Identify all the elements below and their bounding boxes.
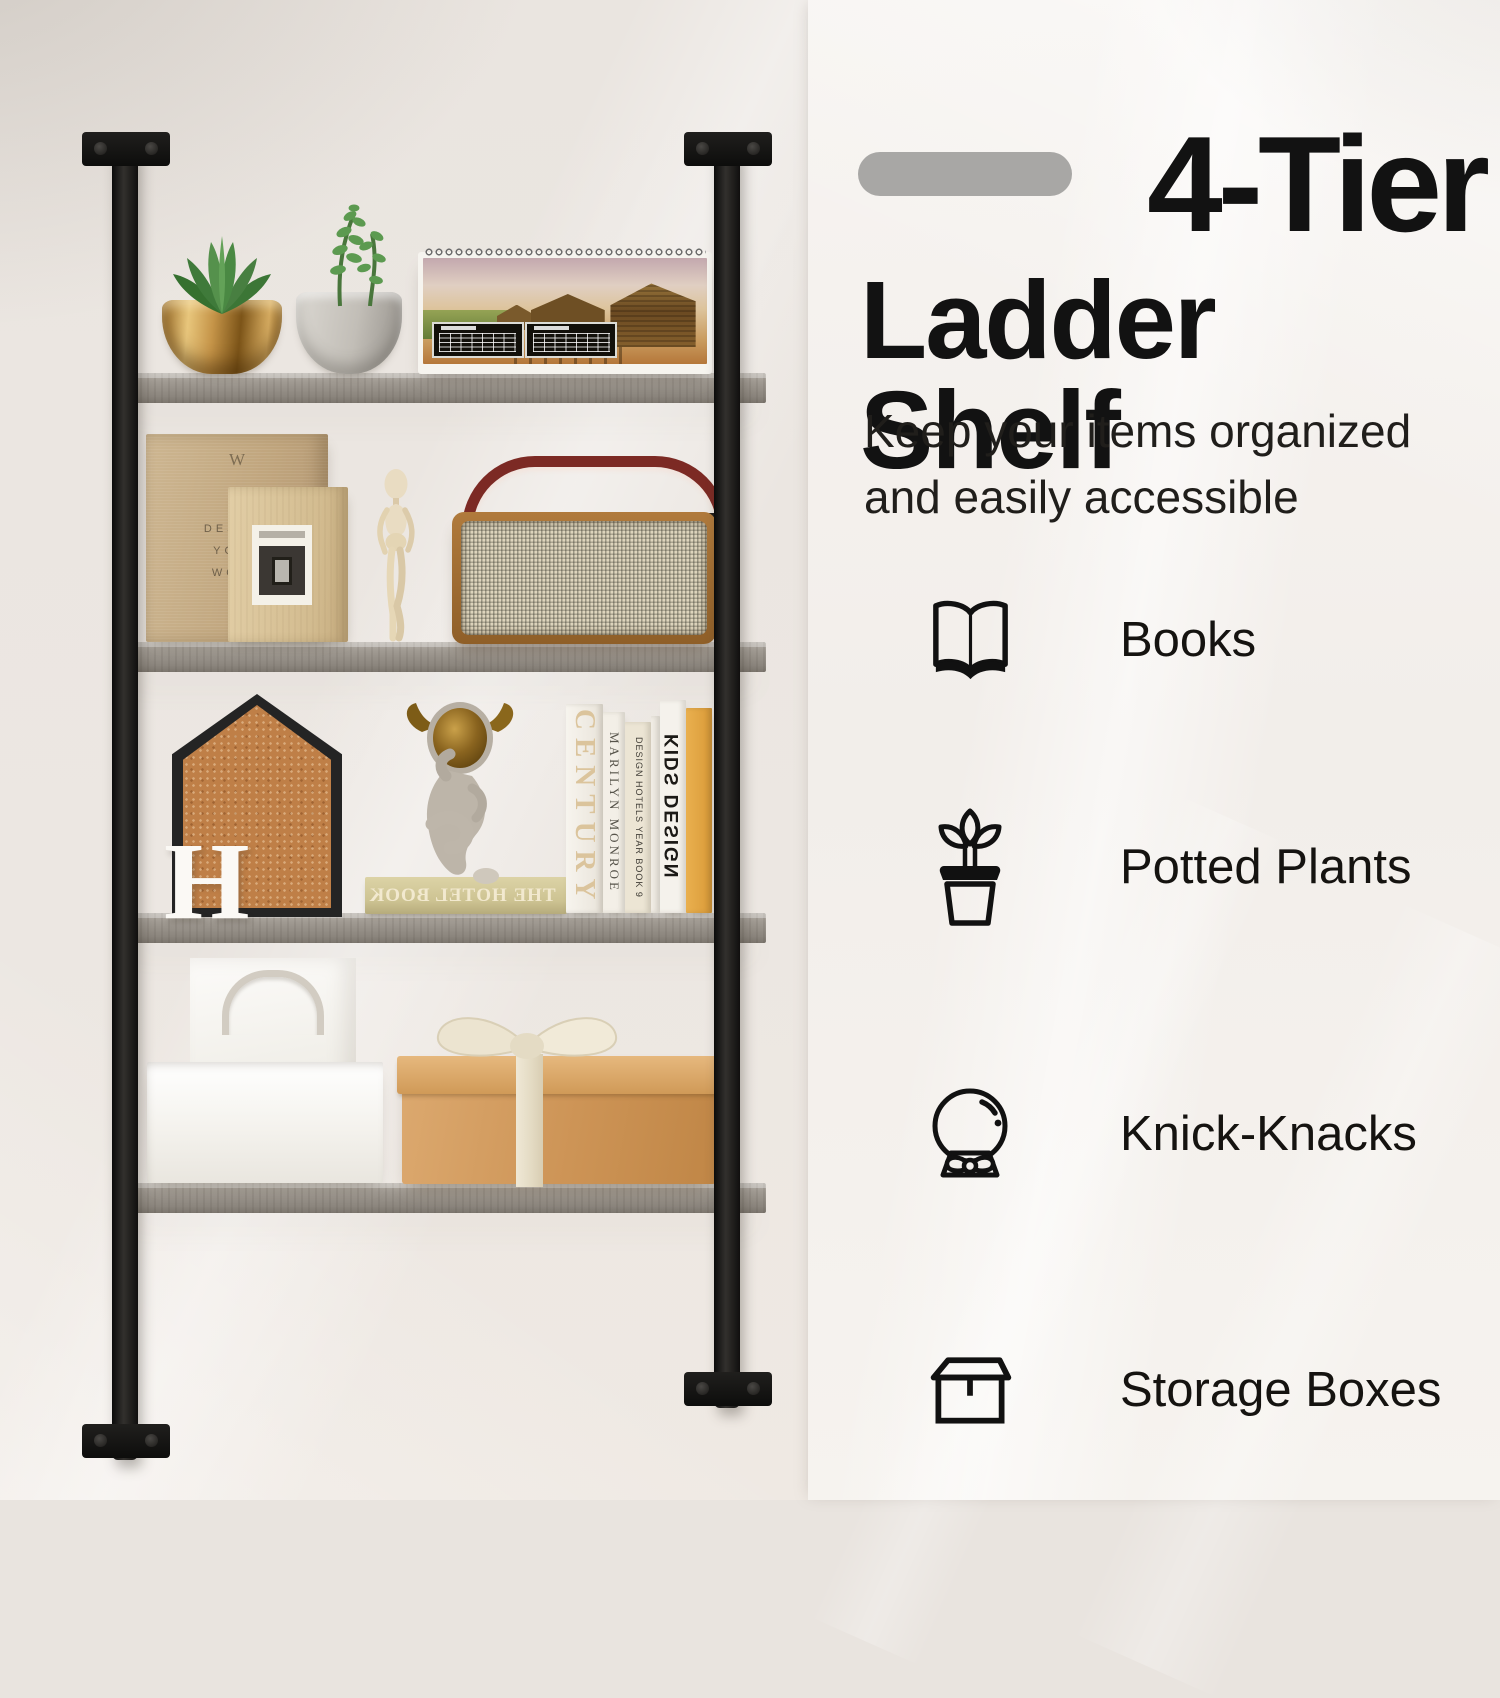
subtitle-line-2: and easily accessible xyxy=(864,464,1411,530)
flat-book-title: THE HOTEL BOOK xyxy=(365,885,559,907)
white-storage-box xyxy=(147,1062,383,1183)
feature-label: Books xyxy=(1120,612,1256,668)
subtitle: Keep your items organized and easily acc… xyxy=(864,398,1411,530)
label-photo xyxy=(259,546,305,596)
page-title-line-1: 4-Tier xyxy=(1040,116,1485,252)
frame-rail-left xyxy=(112,148,138,1460)
book-spine-kids-design: KIDS DESIGN xyxy=(660,700,686,913)
book-spine-century: CENTURY xyxy=(566,704,603,913)
open-book-icon xyxy=(918,592,1022,687)
vintage-radio xyxy=(452,512,716,644)
wall-bracket xyxy=(684,132,772,166)
snow-globe-icon xyxy=(918,1072,1022,1196)
potted-plant-icon xyxy=(918,806,1022,928)
feature-row-books: Books xyxy=(918,592,1256,687)
wooden-mannequin xyxy=(356,468,438,644)
feature-label: Potted Plants xyxy=(1120,839,1411,895)
shelf-board-4 xyxy=(112,1183,766,1213)
feature-label: Knick-Knacks xyxy=(1120,1106,1417,1162)
calendar-month-grid xyxy=(432,322,524,358)
feature-row-storage-boxes: Storage Boxes xyxy=(918,1344,1441,1436)
wall-bracket xyxy=(684,1372,772,1406)
radio-grille xyxy=(461,521,707,635)
subtitle-line-1: Keep your items organized xyxy=(864,398,1411,464)
frame-rail-right xyxy=(714,148,740,1408)
shelf-board-1 xyxy=(112,373,766,403)
book-spine-orange xyxy=(686,708,712,913)
monogram-letter: H xyxy=(164,826,250,936)
calendar-month-grid xyxy=(525,322,617,358)
book-spine-design-hotels: DESIGN HOTELS YEAR BOOK 9 xyxy=(625,722,651,913)
photo-book xyxy=(228,487,348,642)
desk-calendar xyxy=(418,252,712,374)
wall-bracket xyxy=(82,1424,170,1458)
feature-label: Storage Boxes xyxy=(1120,1362,1441,1418)
succulent-plant xyxy=(146,230,298,316)
barn xyxy=(610,283,695,347)
photo-book-label xyxy=(252,525,312,605)
feature-row-potted-plants: Potted Plants xyxy=(918,806,1411,928)
calendar-landscape-photo xyxy=(423,258,707,364)
wall-bracket xyxy=(82,132,170,166)
ribbon-bow xyxy=(422,1004,632,1076)
bull-head-figurine xyxy=(396,696,524,886)
spiral-binding xyxy=(424,245,706,259)
trailing-succulent-plant xyxy=(298,188,410,308)
feature-row-knick-knacks: Knick-Knacks xyxy=(918,1072,1417,1196)
rope-handle xyxy=(222,970,324,1035)
book-spine-marilyn-monroe: MARILYN MONROE xyxy=(603,712,625,913)
storage-box-icon xyxy=(918,1344,1022,1436)
notebook-logo: W xyxy=(146,450,328,470)
book-spine-blank xyxy=(651,716,660,913)
shelf-board-2 xyxy=(112,642,766,672)
